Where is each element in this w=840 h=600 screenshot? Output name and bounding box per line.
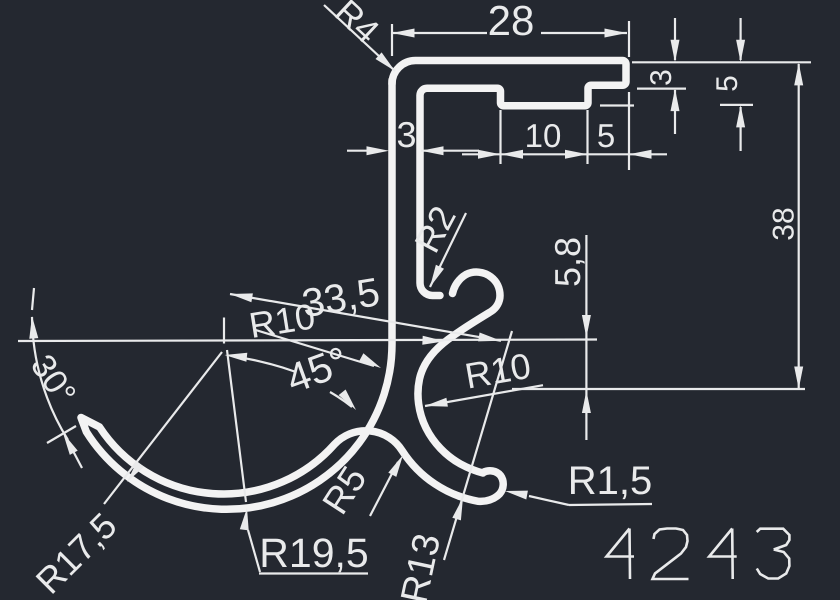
svg-text:3: 3 <box>396 114 416 155</box>
svg-text:5: 5 <box>711 75 744 92</box>
svg-text:5: 5 <box>597 117 615 154</box>
svg-text:3: 3 <box>645 69 678 86</box>
svg-text:38: 38 <box>768 207 801 240</box>
svg-text:R1,5: R1,5 <box>568 459 653 503</box>
svg-text:5,8: 5,8 <box>547 237 588 287</box>
svg-text:R19,5: R19,5 <box>259 530 368 576</box>
svg-text:10: 10 <box>525 117 562 154</box>
svg-text:28: 28 <box>488 0 535 44</box>
